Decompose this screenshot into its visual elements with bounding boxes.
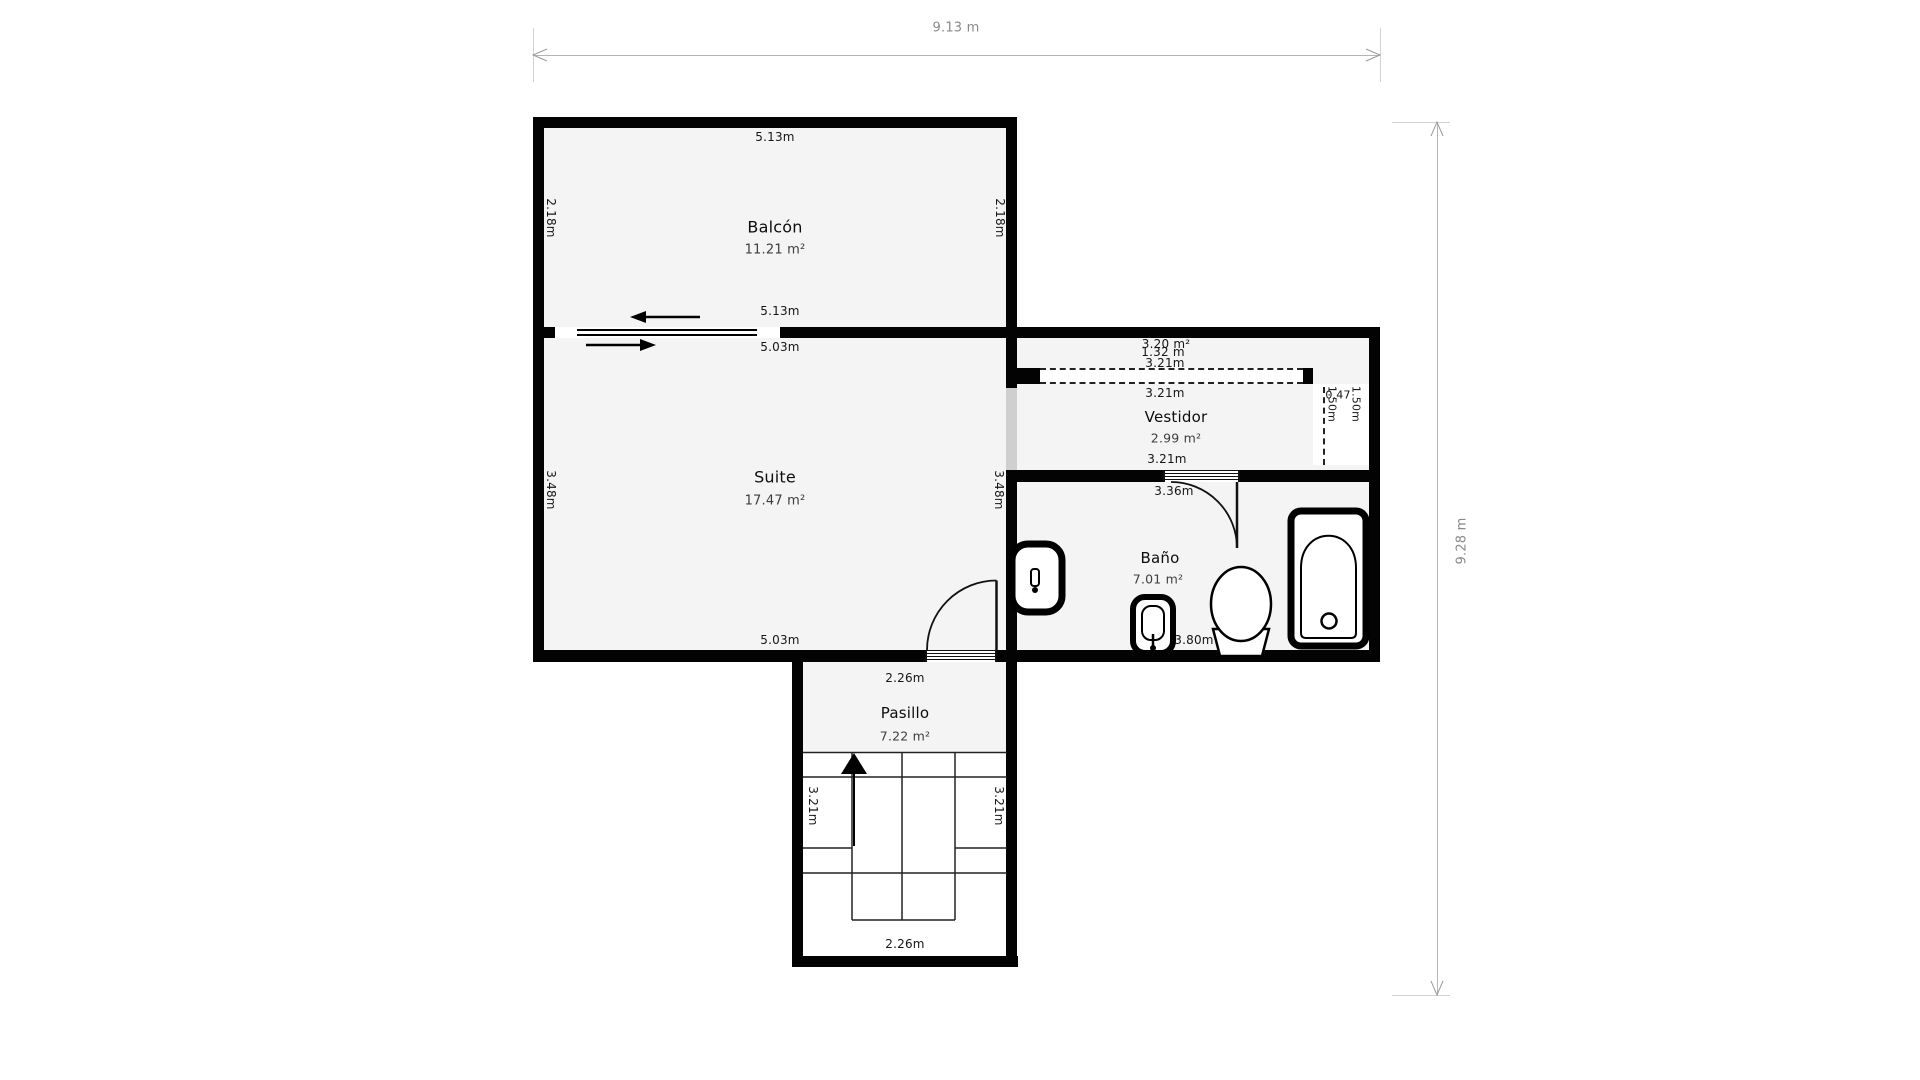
balcon-dim-bottom-inner: 5.03m [760,340,799,354]
wall-bottom-right [997,650,1380,662]
vestidor-area: 2.99 m² [1151,431,1201,446]
wall-suite-right-upper [1006,338,1017,388]
pasillo-name: Pasillo [881,704,929,722]
vestidor-dim-bottom: 3.21m [1147,452,1186,466]
closet-right-dim-height-b: 1.50m [1350,386,1363,422]
floor-plan: 9.13 m 9.28 m 5.13m Balcón 11.21 m² 2.18… [0,0,1920,1080]
dimension-line-right [1437,122,1438,995]
stairwell-area [803,752,1007,956]
wall-closet-stub-right [1303,368,1313,384]
wall-balcon-left [533,117,544,338]
pasillo-dim-left: 3.21m [806,786,820,825]
wall-balcon-suite-left-stub [533,327,555,338]
strip-dim-width: 3.21m [1145,356,1184,370]
closet-right-dim-height-a: 1.50m [1326,386,1339,422]
vestidor-name: Vestidor [1145,408,1208,426]
pasillo-dim-bottom: 2.26m [885,937,924,951]
dimension-tick-top-left [533,28,534,82]
overall-width-label: 9.13 m [933,21,980,36]
wall-closet-stub-left [1017,368,1040,384]
suite-dim-right: 3.48m [992,470,1006,509]
suite-dim-bottom: 5.03m [760,633,799,647]
balcon-name: Balcón [747,218,802,237]
balcon-dim-right: 2.18m [993,198,1007,237]
balcon-dim-left: 2.18m [544,198,558,237]
dimension-tick-right-bottom [1392,995,1450,996]
wall-balcon-suite-right [780,327,1380,338]
door-threshold-bano [1163,470,1240,482]
suite-dim-left: 3.48m [544,470,558,509]
bano-dim-top: 3.36m [1154,484,1193,498]
bano-dim-right: 1.84m [1350,546,1364,585]
wall-opening-suite-vestidor [1006,388,1017,470]
overall-height-label: 9.28 m [1455,518,1470,565]
dimension-tick-top-right [1380,28,1381,82]
bano-name: Baño [1141,549,1180,567]
closet-dashed-band [1040,368,1303,384]
wall-bottom-suite [533,650,925,662]
pasillo-area: 7.22 m² [880,729,930,744]
suite-area: 17.47 m² [745,494,806,509]
sliding-door-balcon [577,329,757,336]
vestidor-dim-top: 3.21m [1145,386,1184,400]
wall-vestidor-bottom-left [1006,470,1163,482]
wall-pasillo-left [792,662,803,967]
dimension-line-top [533,55,1380,56]
wall-suite-left [533,338,544,662]
balcon-dim-top: 5.13m [755,130,794,144]
wall-balcon-top [533,117,1017,128]
door-threshold-suite [925,650,997,662]
bano-dim-bottom: 3.80m [1174,633,1213,647]
bano-area: 7.01 m² [1133,572,1183,587]
dimension-tick-right-top [1392,122,1450,123]
pasillo-dim-right: 3.21m [992,786,1006,825]
wall-pasillo-bottom [792,956,1018,967]
wall-vestidor-bottom-right [1240,470,1380,482]
wall-balcon-right [1006,117,1017,338]
pasillo-dim-top: 2.26m [885,671,924,685]
bano-dim-left: 1.43m [1022,548,1036,587]
balcon-dim-bottom-outer: 5.13m [760,304,799,318]
suite-name: Suite [754,468,796,487]
wall-suite-pasillo-right [1006,470,1017,967]
balcon-area: 11.21 m² [745,243,806,258]
wall-right-outer [1369,327,1380,662]
